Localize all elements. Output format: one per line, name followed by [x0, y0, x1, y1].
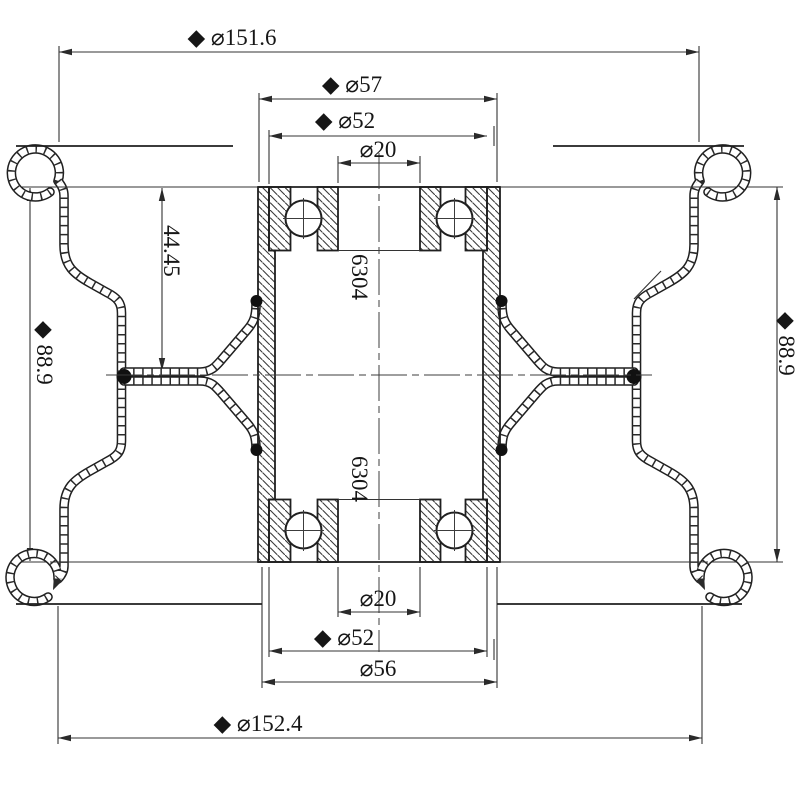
dim-label-dia-57: ◆ ⌀57	[322, 72, 382, 97]
dim-label-88-9-left: ◆ 88.9	[32, 321, 57, 385]
bearing-code-bottom: 6304	[347, 456, 372, 503]
dim-label-dia-20-bottom: ⌀20	[360, 586, 397, 611]
bearing-code-top: 6304	[347, 254, 372, 301]
dim-label-dia-56: ⌀56	[360, 656, 397, 681]
dim-label-dia-151-6: ◆ ⌀151.6	[187, 25, 276, 50]
dim-label-44-45: 44.45	[159, 225, 184, 277]
dim-label-dia-152-4: ◆ ⌀152.4	[213, 711, 303, 736]
dim-label-88-9-right: ◆ 88.9	[774, 312, 799, 376]
technical-drawing: ◆ ⌀151.6 ◆ ⌀57 ◆ ⌀52 ⌀20 44.45 ◆ 88.9 ◆ …	[0, 0, 800, 800]
dim-label-dia-20-top: ⌀20	[360, 137, 397, 162]
dim-label-dia-52-bottom: ◆ ⌀52	[314, 625, 374, 650]
dim-label-dia-52-top: ◆ ⌀52	[315, 108, 375, 133]
